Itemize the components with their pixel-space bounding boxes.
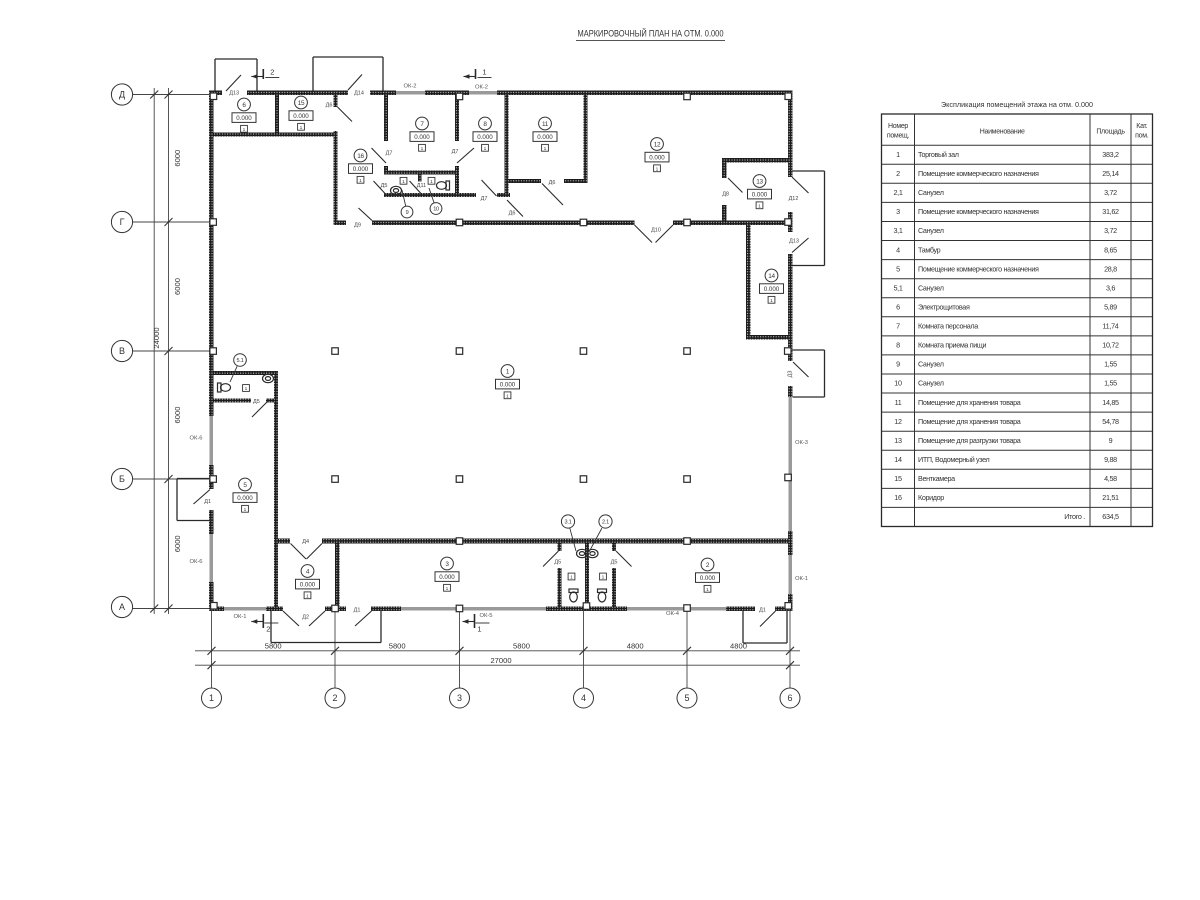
svg-text:ОК-1: ОК-1 bbox=[795, 576, 808, 582]
svg-text:0.000: 0.000 bbox=[764, 286, 780, 293]
svg-text:Площадь: Площадь bbox=[1096, 129, 1125, 136]
svg-text:12: 12 bbox=[894, 417, 902, 426]
svg-text:1: 1 bbox=[477, 625, 481, 634]
svg-text:31,62: 31,62 bbox=[1102, 207, 1119, 216]
svg-text:А: А bbox=[119, 602, 125, 612]
svg-text:10: 10 bbox=[433, 207, 439, 213]
svg-text:Тамбур: Тамбур bbox=[918, 245, 941, 254]
svg-text:ИТП, Водомерный узел: ИТП, Водомерный узел bbox=[918, 455, 990, 464]
svg-text:Б: Б bbox=[119, 474, 125, 484]
svg-text:Г: Г bbox=[120, 217, 125, 227]
svg-text:14,85: 14,85 bbox=[1102, 398, 1119, 407]
svg-text:пом.: пом. bbox=[1135, 133, 1149, 140]
svg-text:1: 1 bbox=[446, 586, 449, 592]
svg-text:1: 1 bbox=[602, 575, 605, 581]
svg-text:1: 1 bbox=[484, 146, 487, 152]
svg-text:14: 14 bbox=[768, 273, 775, 280]
svg-text:1: 1 bbox=[544, 146, 547, 152]
svg-text:2: 2 bbox=[266, 625, 270, 634]
svg-text:5.1: 5.1 bbox=[237, 358, 244, 364]
svg-text:ОК-6: ОК-6 bbox=[189, 436, 202, 442]
svg-text:2.1: 2.1 bbox=[602, 520, 609, 526]
svg-text:ОК-2: ОК-2 bbox=[403, 84, 416, 90]
svg-text:6000: 6000 bbox=[173, 535, 182, 552]
svg-text:Экспликация помещений этажа на: Экспликация помещений этажа на отм. 0.00… bbox=[941, 101, 1093, 109]
svg-text:МАРКИРОВОЧНЫЙ ПЛАН НА ОТМ. 0.0: МАРКИРОВОЧНЫЙ ПЛАН НА ОТМ. 0.000 bbox=[578, 28, 724, 39]
svg-text:1,55: 1,55 bbox=[1104, 360, 1117, 369]
svg-text:3,72: 3,72 bbox=[1104, 188, 1117, 197]
svg-text:4,58: 4,58 bbox=[1104, 474, 1117, 483]
svg-text:Помещение для хранения товара: Помещение для хранения товара bbox=[918, 398, 1021, 407]
svg-text:Торговый зал: Торговый зал bbox=[918, 150, 959, 159]
svg-text:0.000: 0.000 bbox=[752, 192, 768, 199]
svg-text:1,55: 1,55 bbox=[1104, 379, 1117, 388]
svg-text:9: 9 bbox=[896, 360, 900, 369]
svg-text:Д1: Д1 bbox=[204, 499, 211, 505]
svg-text:Д5: Д5 bbox=[554, 559, 561, 565]
svg-text:6000: 6000 bbox=[173, 407, 182, 424]
svg-text:1: 1 bbox=[243, 127, 246, 133]
svg-text:Д13: Д13 bbox=[789, 239, 799, 245]
svg-text:1: 1 bbox=[209, 693, 214, 703]
svg-text:1: 1 bbox=[570, 575, 573, 581]
svg-text:10,72: 10,72 bbox=[1102, 341, 1119, 350]
svg-text:помещ.: помещ. bbox=[887, 133, 910, 140]
svg-text:Санузел: Санузел bbox=[918, 283, 944, 292]
svg-text:9: 9 bbox=[406, 210, 409, 216]
svg-text:13: 13 bbox=[756, 178, 763, 185]
svg-text:634,5: 634,5 bbox=[1102, 512, 1119, 521]
svg-text:ОК-3: ОК-3 bbox=[795, 440, 808, 446]
svg-text:Д6: Д6 bbox=[509, 210, 516, 216]
svg-text:54,78: 54,78 bbox=[1102, 417, 1119, 426]
svg-text:Д7: Д7 bbox=[481, 196, 488, 202]
svg-text:Д10: Д10 bbox=[651, 228, 661, 234]
svg-text:5,89: 5,89 bbox=[1104, 303, 1117, 312]
svg-text:Д13: Д13 bbox=[229, 91, 239, 97]
svg-text:6000: 6000 bbox=[173, 150, 182, 167]
svg-text:Д1: Д1 bbox=[354, 608, 361, 614]
svg-text:Коридор: Коридор bbox=[918, 493, 944, 502]
svg-text:9,88: 9,88 bbox=[1104, 455, 1117, 464]
svg-text:Д1: Д1 bbox=[759, 608, 766, 614]
svg-text:0.000: 0.000 bbox=[353, 166, 369, 173]
svg-text:Д3: Д3 bbox=[788, 371, 794, 378]
svg-text:1: 1 bbox=[896, 150, 900, 159]
svg-text:Помещение коммерческого назнач: Помещение коммерческого назначения bbox=[918, 207, 1039, 216]
svg-text:4: 4 bbox=[896, 245, 900, 254]
svg-text:3: 3 bbox=[896, 207, 900, 216]
svg-text:ОК-1: ОК-1 bbox=[233, 614, 246, 620]
svg-text:Д5: Д5 bbox=[381, 183, 388, 189]
svg-text:Помещение коммерческого назнач: Помещение коммерческого назначения bbox=[918, 264, 1039, 273]
svg-text:0.000: 0.000 bbox=[537, 134, 553, 141]
svg-text:15: 15 bbox=[298, 100, 305, 107]
svg-text:5800: 5800 bbox=[389, 642, 406, 651]
svg-text:0.000: 0.000 bbox=[293, 113, 309, 120]
svg-text:4: 4 bbox=[581, 693, 586, 703]
svg-text:Д7: Д7 bbox=[452, 149, 459, 155]
svg-text:6000: 6000 bbox=[173, 278, 182, 295]
svg-text:Кат.: Кат. bbox=[1136, 123, 1147, 130]
svg-text:Комната приема пищи: Комната приема пищи bbox=[918, 341, 986, 350]
svg-text:Итого .: Итого . bbox=[1064, 512, 1085, 521]
svg-text:Д: Д bbox=[119, 90, 125, 100]
svg-text:9: 9 bbox=[1109, 436, 1113, 445]
svg-text:5800: 5800 bbox=[513, 642, 530, 651]
svg-text:Помещение коммерческого назнач: Помещение коммерческого назначения bbox=[918, 169, 1039, 178]
svg-text:Санузел: Санузел bbox=[918, 360, 944, 369]
svg-text:1: 1 bbox=[402, 179, 405, 185]
svg-text:4800: 4800 bbox=[627, 642, 644, 651]
svg-text:ОК-5: ОК-5 bbox=[479, 613, 492, 619]
svg-text:27000: 27000 bbox=[490, 656, 511, 665]
svg-text:Д5: Д5 bbox=[611, 559, 618, 565]
svg-text:1: 1 bbox=[430, 179, 433, 185]
svg-text:1: 1 bbox=[506, 393, 509, 399]
svg-text:1: 1 bbox=[482, 68, 486, 77]
svg-text:0.000: 0.000 bbox=[237, 495, 253, 502]
svg-text:8,65: 8,65 bbox=[1104, 245, 1117, 254]
svg-text:0.000: 0.000 bbox=[700, 575, 716, 582]
svg-text:2: 2 bbox=[332, 693, 337, 703]
svg-text:7: 7 bbox=[896, 322, 900, 331]
svg-text:1: 1 bbox=[245, 386, 248, 392]
svg-text:Номер: Номер bbox=[888, 123, 908, 130]
svg-text:Наименование: Наименование bbox=[980, 129, 1025, 136]
svg-text:0.000: 0.000 bbox=[439, 574, 455, 581]
svg-text:0.000: 0.000 bbox=[414, 134, 430, 141]
svg-text:2: 2 bbox=[896, 169, 900, 178]
svg-text:383,2: 383,2 bbox=[1102, 150, 1119, 159]
svg-text:Д2: Д2 bbox=[302, 615, 309, 621]
svg-text:Д5: Д5 bbox=[253, 399, 260, 405]
svg-text:28,8: 28,8 bbox=[1104, 264, 1117, 273]
svg-text:1: 1 bbox=[244, 507, 247, 513]
svg-text:24000: 24000 bbox=[152, 327, 161, 348]
svg-text:Д12: Д12 bbox=[789, 196, 799, 202]
svg-text:Электрощитовая: Электрощитовая bbox=[918, 303, 970, 312]
svg-text:1: 1 bbox=[758, 203, 761, 209]
svg-text:5,1: 5,1 bbox=[893, 283, 902, 292]
svg-text:3,72: 3,72 bbox=[1104, 226, 1117, 235]
svg-text:6: 6 bbox=[787, 693, 792, 703]
svg-text:3: 3 bbox=[457, 693, 462, 703]
svg-text:15: 15 bbox=[894, 474, 902, 483]
svg-text:21,51: 21,51 bbox=[1102, 493, 1119, 502]
svg-text:0.000: 0.000 bbox=[300, 582, 316, 589]
svg-text:Д14: Д14 bbox=[354, 91, 364, 97]
svg-text:Д4: Д4 bbox=[302, 539, 309, 545]
svg-text:Помещение для разгрузки товара: Помещение для разгрузки товара bbox=[918, 436, 1021, 445]
svg-text:11,74: 11,74 bbox=[1103, 322, 1119, 331]
svg-text:1: 1 bbox=[359, 178, 362, 184]
svg-text:1: 1 bbox=[706, 587, 709, 593]
svg-text:ОК-4: ОК-4 bbox=[666, 611, 680, 617]
svg-text:Д6: Д6 bbox=[549, 180, 556, 186]
svg-text:3,6: 3,6 bbox=[1106, 283, 1115, 292]
svg-text:1: 1 bbox=[300, 125, 303, 131]
svg-text:Венткамера: Венткамера bbox=[918, 474, 955, 483]
svg-text:Д8: Д8 bbox=[722, 192, 729, 198]
svg-text:13: 13 bbox=[894, 436, 902, 445]
svg-text:ОК-2: ОК-2 bbox=[475, 85, 488, 91]
svg-text:11: 11 bbox=[542, 121, 549, 128]
svg-text:1: 1 bbox=[306, 593, 309, 599]
svg-text:0.000: 0.000 bbox=[649, 155, 665, 162]
svg-text:25,14: 25,14 bbox=[1102, 169, 1119, 178]
svg-text:11: 11 bbox=[895, 398, 902, 407]
svg-text:ОК-6: ОК-6 bbox=[189, 559, 202, 565]
svg-text:Д11: Д11 bbox=[417, 183, 426, 189]
svg-text:3,1: 3,1 bbox=[893, 226, 902, 235]
svg-text:12: 12 bbox=[654, 141, 661, 148]
svg-text:1: 1 bbox=[421, 146, 424, 152]
svg-text:0.000: 0.000 bbox=[477, 134, 493, 141]
svg-text:2,1: 2,1 bbox=[893, 188, 902, 197]
svg-text:6: 6 bbox=[896, 303, 900, 312]
svg-text:16: 16 bbox=[894, 493, 902, 502]
svg-text:5: 5 bbox=[896, 264, 900, 273]
svg-text:10: 10 bbox=[894, 379, 902, 388]
svg-text:В: В bbox=[119, 346, 125, 356]
svg-text:1: 1 bbox=[656, 166, 659, 172]
svg-text:16: 16 bbox=[357, 153, 364, 160]
svg-text:Санузел: Санузел bbox=[918, 188, 944, 197]
svg-text:Санузел: Санузел bbox=[918, 226, 944, 235]
svg-text:Комната персонала: Комната персонала bbox=[918, 322, 978, 331]
svg-text:1: 1 bbox=[770, 298, 773, 304]
svg-text:8: 8 bbox=[896, 341, 900, 350]
svg-text:0.000: 0.000 bbox=[236, 115, 252, 122]
svg-text:Санузел: Санузел bbox=[918, 379, 944, 388]
svg-text:Д9: Д9 bbox=[354, 223, 361, 229]
svg-text:Д6: Д6 bbox=[326, 103, 333, 109]
svg-text:0.000: 0.000 bbox=[500, 382, 516, 389]
svg-text:Помещение для хранения товара: Помещение для хранения товара bbox=[918, 417, 1021, 426]
svg-text:3.1: 3.1 bbox=[565, 520, 572, 526]
svg-text:Д7: Д7 bbox=[386, 150, 393, 156]
svg-text:2: 2 bbox=[270, 68, 274, 77]
svg-text:14: 14 bbox=[894, 455, 902, 464]
svg-text:5: 5 bbox=[684, 693, 689, 703]
